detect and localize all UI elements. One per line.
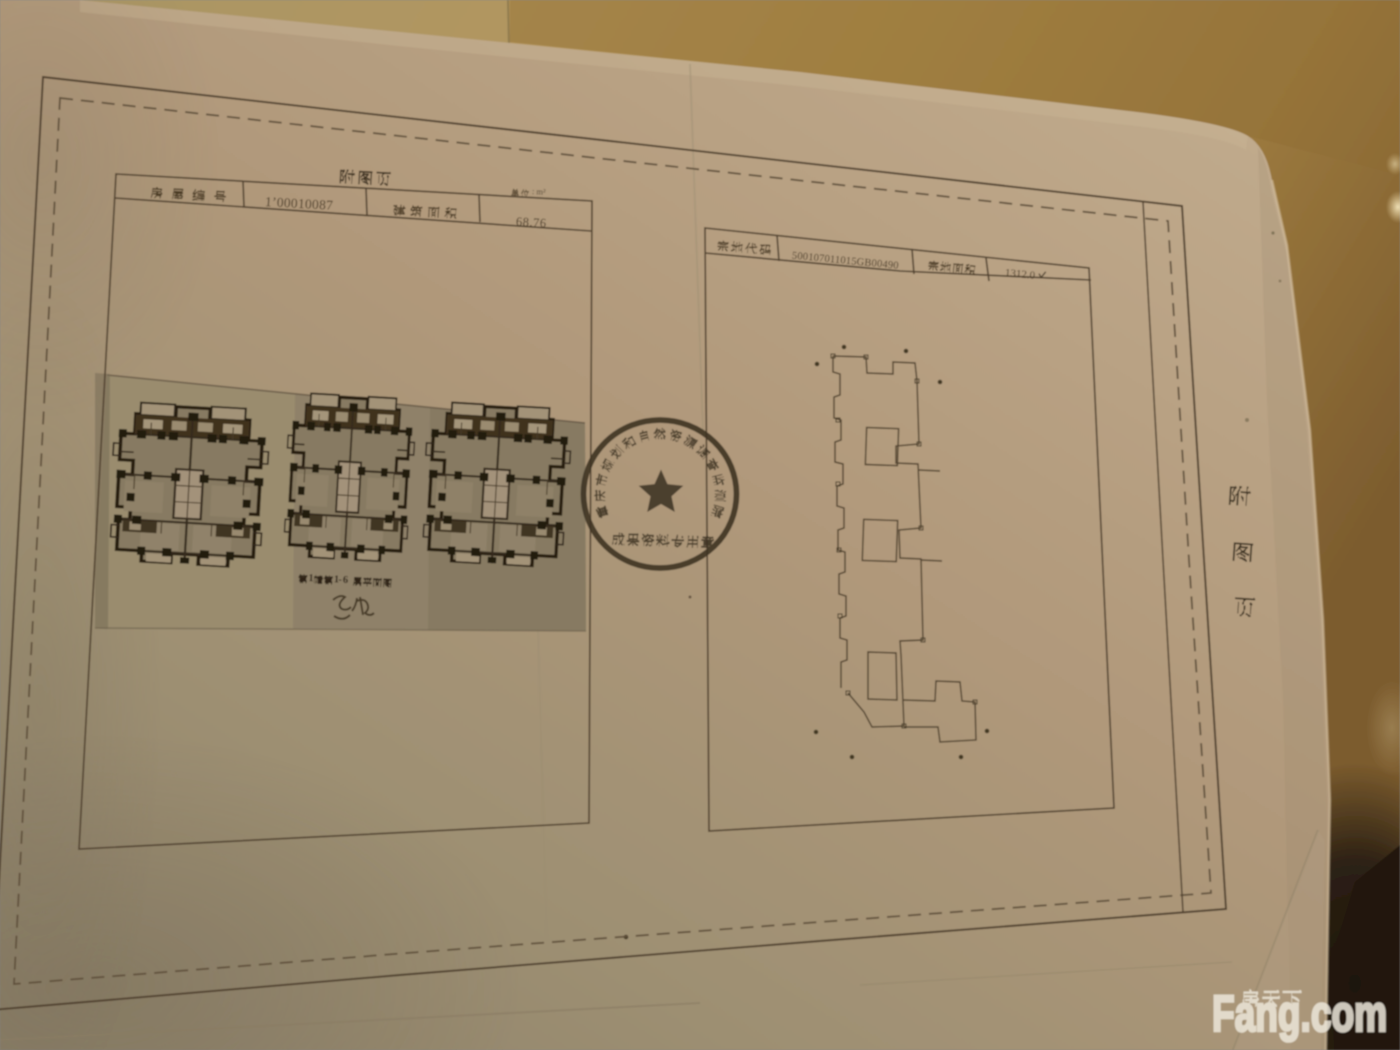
svg-text:68.76: 68.76 <box>516 215 547 231</box>
svg-text:: m²: : m² <box>532 186 547 197</box>
svg-text:1: 1 <box>308 573 314 584</box>
svg-text:6: 6 <box>343 575 349 586</box>
svg-text:Fang.com: Fang.com <box>1212 986 1387 1042</box>
